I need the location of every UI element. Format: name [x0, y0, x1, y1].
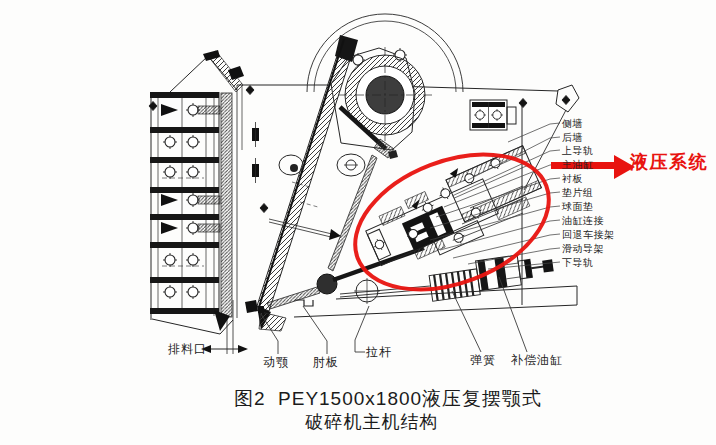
figure-caption-line1: 图2 PEY1500x1800液压复摆颚式: [200, 386, 576, 412]
label-sliding-guide-frame: 滑动导架: [562, 243, 604, 254]
label-tension-rod: 拉杆: [366, 346, 392, 359]
rear-wall-bolt-block: [470, 100, 516, 130]
feed-hopper: [170, 50, 244, 92]
label-rear-wall: 后墙: [562, 132, 583, 143]
label-toggle-plate: 肘板: [313, 356, 339, 369]
label-shim-pack: 垫片组: [562, 187, 594, 198]
figure-jaw-crusher-diagram: 侧墙 后墙 上导轨 主油缸 衬板 垫片组 球面垫 油缸连接 回退车接架 滑动导架…: [0, 0, 716, 445]
figure-caption-line2: 破碎机主机结构: [184, 410, 560, 434]
label-moving-jaw: 动颚: [263, 356, 289, 369]
highlight-ellipse: [336, 129, 568, 315]
label-side-wall: 侧墙: [562, 118, 583, 129]
hydraulic-system-annotation: 液压系统: [630, 150, 708, 174]
label-spherical-pad: 球面垫: [562, 201, 594, 212]
front-frame-ladder: [149, 92, 233, 334]
moving-jaw-plate: [257, 35, 358, 331]
label-liner-plate: 衬板: [562, 173, 583, 184]
label-spring: 弹簧: [470, 354, 496, 367]
label-cylinder-connection: 油缸连接: [562, 215, 604, 226]
machine-drawing: [0, 0, 716, 445]
label-upper-guide-rail: 上导轨: [562, 145, 594, 156]
label-main-oil-cylinder: 主油缸: [562, 159, 594, 170]
label-compensation-cylinder: 补偿油缸: [511, 354, 563, 367]
discharge-dimension-arrow: [201, 345, 248, 353]
label-retract-carriage: 回退车接架: [562, 229, 615, 240]
label-discharge-opening: 排料口: [168, 343, 207, 356]
label-lower-guide-rail: 下导轨: [562, 257, 594, 268]
